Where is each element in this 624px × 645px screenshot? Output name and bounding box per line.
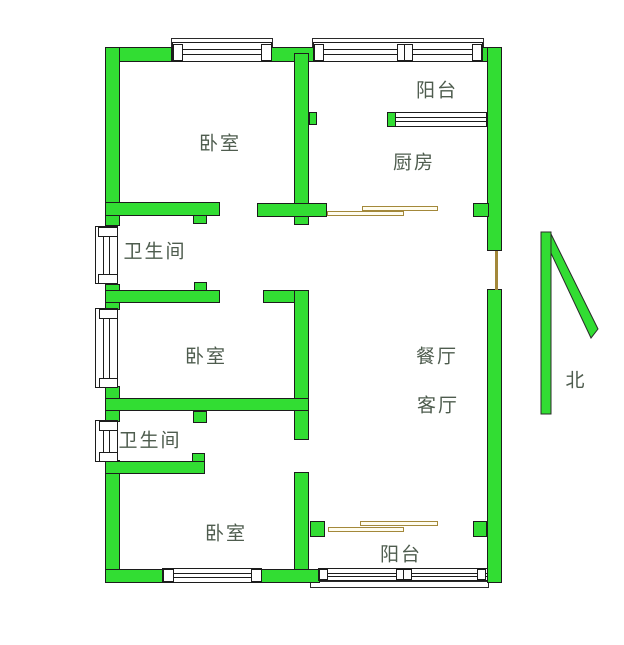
door-jamb-bedroom-middle (193, 411, 207, 423)
window-bedroom-top (172, 42, 272, 62)
room-label-dining-room: 餐厅 (416, 342, 458, 369)
divider-window-stub (309, 112, 317, 125)
bedroom-top-bottom-wall (105, 202, 220, 216)
left-wall-upper (105, 47, 120, 226)
room-label-kitchen: 厨房 (393, 148, 435, 175)
room-label-bathroom-upper: 卫生间 (123, 237, 186, 264)
window-post (99, 309, 118, 319)
window-post (314, 44, 324, 61)
right-wall-upper (487, 47, 502, 251)
room-label-bathroom-lower: 卫生间 (118, 426, 181, 453)
left-wall-lower (105, 460, 120, 583)
window-post (251, 569, 262, 582)
room-label-balcony-top: 阳台 (416, 76, 458, 103)
window-post (163, 569, 174, 582)
room-label-bedroom-bottom: 卧室 (205, 519, 247, 546)
sliding-door-kitchen-leaf (327, 211, 404, 216)
room-label-bedroom-top: 卧室 (199, 129, 241, 156)
window-post (173, 44, 183, 61)
bedroom-bottom-right-wall (294, 472, 309, 573)
bedroom-kitchen-divider (294, 53, 309, 206)
room-label-bedroom-middle: 卧室 (185, 342, 227, 369)
bottom-wall-middle (260, 569, 320, 583)
window-post (98, 227, 118, 237)
window-post (472, 44, 482, 61)
window-sill-balcony-bottom (310, 581, 489, 588)
kitchen-bottom-wall-left (257, 203, 327, 217)
kitchen-bottom-wall-right (473, 203, 489, 217)
bathroom-upper-bottom-wall (105, 290, 220, 303)
top-wall-middle (270, 47, 316, 62)
window-kitchen-balcony (395, 112, 487, 127)
window-post (99, 452, 118, 462)
room-label-living-room: 客厅 (417, 391, 459, 418)
bedroom-middle-bottom-wall (105, 398, 309, 411)
balcony-door-post-left (310, 521, 325, 537)
window-post (477, 569, 486, 580)
floor-plan: 卧室阳台厨房卫生间卧室餐厅客厅卫生间卧室阳台 北 (0, 0, 624, 645)
north-label: 北 (565, 366, 586, 393)
door-jamb-bathroom-upper (194, 282, 207, 291)
entry-door-leaf (495, 251, 498, 290)
right-wall-lower (487, 289, 502, 583)
window-post (261, 44, 272, 61)
window-post (99, 378, 118, 388)
window-bedroom-bottom (162, 568, 262, 583)
window-post (404, 44, 413, 61)
balcony-door-post-right (473, 521, 487, 537)
bottom-wall-left (105, 569, 163, 583)
window-post (99, 421, 118, 431)
bathroom-lower-bottom-wall (105, 461, 205, 474)
window-bedroom-middle (95, 308, 118, 388)
sliding-door-balcony-leaf (328, 527, 404, 532)
door-jamb-bathroom-lower (192, 453, 205, 462)
central-vertical-wall (294, 290, 309, 440)
window-post (98, 274, 118, 284)
window-post (319, 569, 328, 580)
sliding-door-balcony-leaf (360, 521, 438, 526)
room-label-balcony-bottom: 阳台 (380, 540, 422, 567)
door-jamb-divider-foot (294, 216, 309, 225)
door-jamb-bedroom-top (193, 215, 207, 224)
window-post (403, 569, 412, 580)
